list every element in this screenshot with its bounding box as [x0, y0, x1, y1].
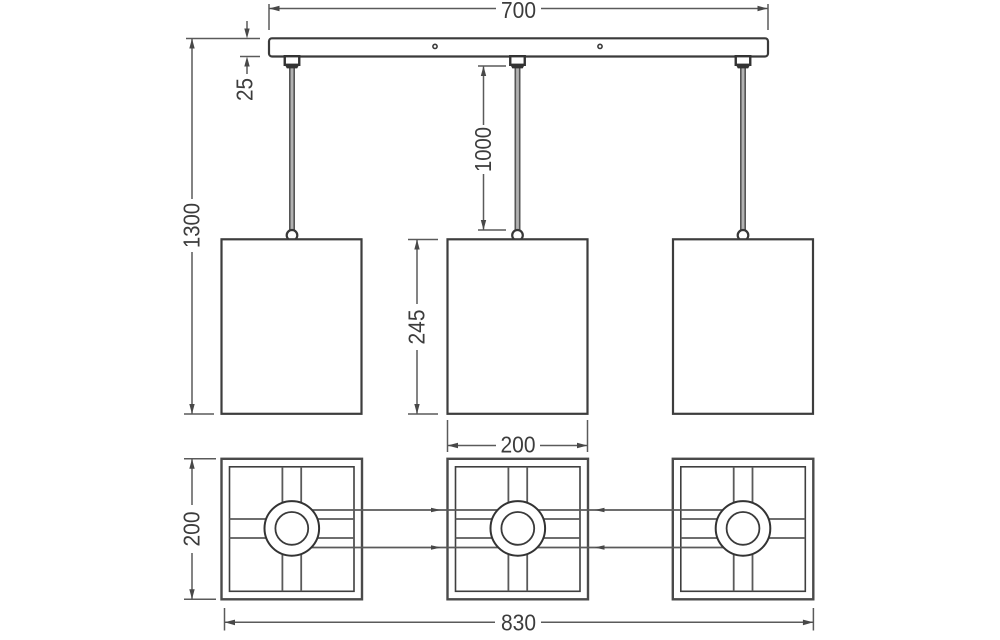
svg-text:25: 25 — [232, 78, 258, 101]
svg-text:245: 245 — [404, 310, 430, 345]
svg-text:1000: 1000 — [470, 127, 496, 172]
svg-text:1300: 1300 — [179, 203, 205, 248]
svg-text:200: 200 — [179, 512, 205, 547]
svg-text:700: 700 — [501, 0, 536, 23]
svg-text:830: 830 — [501, 610, 536, 636]
svg-text:200: 200 — [501, 432, 536, 458]
